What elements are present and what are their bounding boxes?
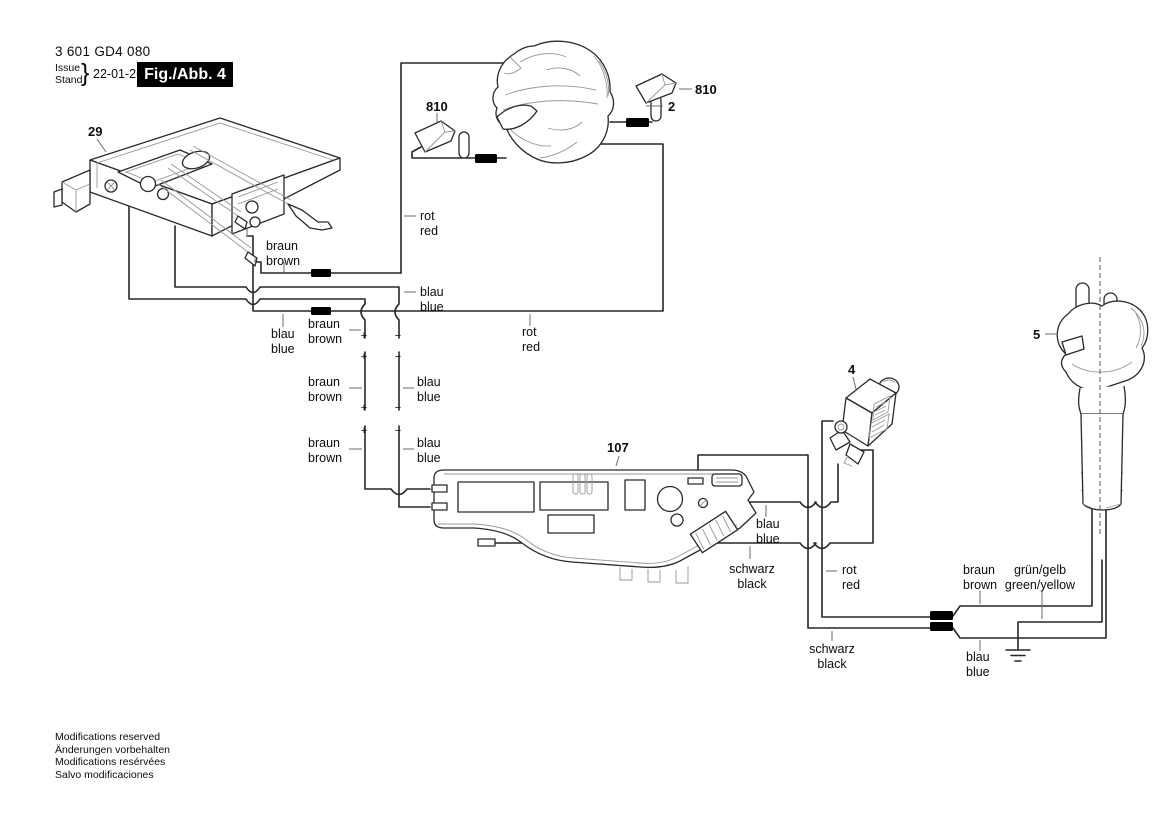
label-blau-corner-en: blue [420,300,444,314]
sleeve-brush-left [475,154,497,163]
field-coil-drawing [493,41,614,163]
label-blau-corner-de: blau [420,285,444,299]
label-blau-left-de: blau [271,327,295,341]
label-braun-switch-en: brown [266,254,300,268]
module-terminal-top [688,478,703,484]
wiring-diagram-page: 3 601 GD4 080 Issue Stand } 22-01-26 Fig… [0,0,1169,826]
label-gruen-gelb-en: green/yellow [1005,578,1076,592]
label-schwarz-cord-en: black [817,657,847,671]
sleeve-braun [311,269,331,277]
module-connector [712,474,742,486]
polarity-marks: + + + + − − − − [361,330,401,437]
plus-mark: + [361,330,367,342]
mains-plug-drawing [1057,257,1148,534]
label-schwarz-module-en: black [737,577,767,591]
label-blau-p1-en: blue [417,390,441,404]
minus-mark: − [395,351,401,363]
part-label-brush-right: 810 [695,82,717,97]
label-blau-left-en: blue [271,342,295,356]
part-label-switch: 29 [88,124,102,139]
part-label-brush-left: 810 [426,99,448,114]
wire-blau-module-suppressor [743,464,838,508]
label-gruen-gelb-de: grün/gelb [1014,563,1066,577]
wiring-diagram: + + + + − − − − [0,0,1169,826]
minus-mark: − [395,402,401,414]
part-label-field-coil: 2 [668,99,675,114]
brush-terminal-left [459,132,469,158]
label-braun-left-en: brown [308,332,342,346]
electronics-module-drawing [432,470,756,583]
part-label-suppressor: 4 [848,362,856,377]
module-terminal-left-bottom [432,503,447,510]
label-braun-p2-en: brown [308,451,342,465]
minus-mark: − [395,425,401,437]
label-rot-suppressor-en: red [842,578,860,592]
label-braun-p1-en: brown [308,390,342,404]
label-braun-cord-en: brown [963,578,997,592]
plus-mark: + [361,402,367,414]
label-blau-p1-de: blau [417,375,441,389]
label-blau-cord-de: blau [966,650,990,664]
part-label-module: 107 [607,440,629,455]
label-rot-suppressor-de: rot [842,563,857,577]
sleeve-cord-bottom [930,622,953,631]
wire-rot-suppressor-cord [822,421,930,617]
module-terminal-bottom [478,539,495,546]
label-blau-module-en: blue [756,532,780,546]
suppressor-drawing [830,378,899,466]
sleeve-blau-rot [311,307,331,315]
label-rot-field-de: rot [420,209,435,223]
label-braun-cord-de: braun [963,563,995,577]
part-label-plug: 5 [1033,327,1040,342]
wire-blau-switch-module [175,226,430,507]
label-schwarz-cord-de: schwarz [809,642,855,656]
plus-mark: + [361,425,367,437]
minus-mark: − [395,330,401,342]
plus-mark: + [361,351,367,363]
wire-color-labels: braun brown rot red blau blue blau blue … [266,209,1076,679]
mains-cable [1092,508,1106,560]
label-rot-field-en: red [420,224,438,238]
ground-symbol [1006,646,1030,661]
label-schwarz-module-de: schwarz [729,562,775,576]
label-blau-module-de: blau [756,517,780,531]
label-braun-left-de: braun [308,317,340,331]
label-braun-switch-de: braun [266,239,298,253]
label-blau-p2-de: blau [417,436,441,450]
label-rot-long-de: rot [522,325,537,339]
module-terminal-left-top [432,485,447,492]
label-braun-p1-de: braun [308,375,340,389]
label-blau-cord-en: blue [966,665,990,679]
label-braun-p2-de: braun [308,436,340,450]
label-blau-p2-en: blue [417,451,441,465]
label-rot-long-en: red [522,340,540,354]
sleeve-cord-top [930,611,953,620]
wire-rot-field-left [401,63,508,273]
sleeve-brush-right [626,118,649,127]
